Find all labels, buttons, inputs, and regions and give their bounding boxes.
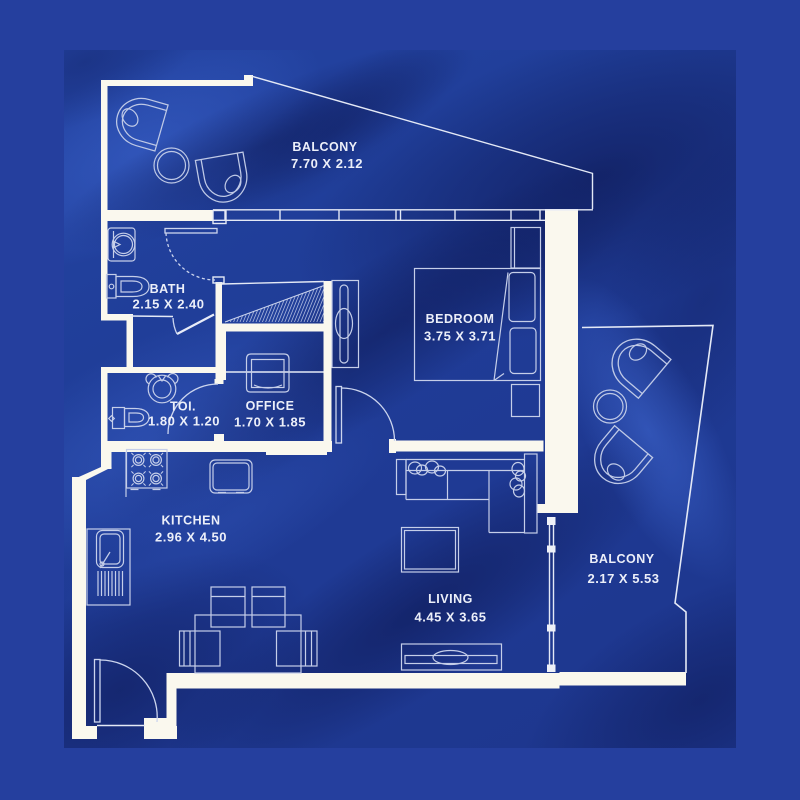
svg-text:BALCONY: BALCONY: [589, 552, 654, 566]
svg-text:BATH: BATH: [150, 282, 186, 296]
svg-text:7.70 X 2.12: 7.70 X 2.12: [291, 156, 363, 171]
svg-text:4.45 X 3.65: 4.45 X 3.65: [415, 610, 487, 625]
svg-text:1.70 X 1.85: 1.70 X 1.85: [234, 415, 306, 430]
svg-text:1.80 X 1.20: 1.80 X 1.20: [148, 414, 220, 429]
svg-text:2.96 X 4.50: 2.96 X 4.50: [155, 530, 227, 545]
svg-text:KITCHEN: KITCHEN: [161, 514, 220, 528]
svg-text:OFFICE: OFFICE: [246, 399, 295, 413]
svg-text:2.17 X 5.53: 2.17 X 5.53: [588, 571, 660, 586]
svg-text:3.75 X 3.71: 3.75 X 3.71: [424, 329, 496, 344]
svg-text:LIVING: LIVING: [428, 592, 473, 606]
svg-text:BEDROOM: BEDROOM: [426, 312, 495, 326]
svg-text:2.15 X 2.40: 2.15 X 2.40: [133, 297, 205, 312]
svg-text:TOI.: TOI.: [170, 400, 196, 414]
svg-text:BALCONY: BALCONY: [292, 140, 357, 154]
